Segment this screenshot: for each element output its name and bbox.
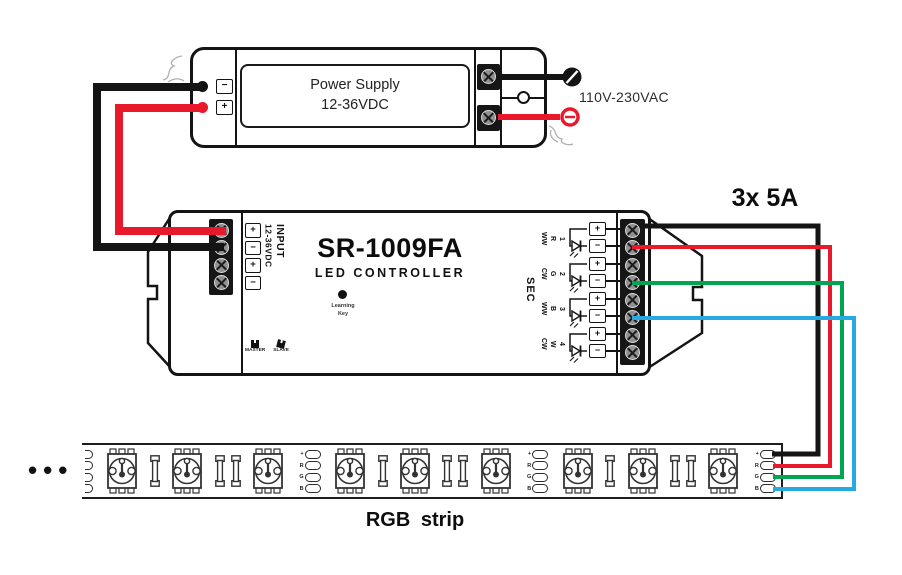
led-symbol	[564, 292, 590, 332]
psu-ac-screw-terminal-bottom	[477, 105, 500, 131]
channel-4-plus-box: +	[589, 327, 606, 341]
power-supply-voltage: 12-36VDC	[321, 96, 389, 116]
strip-pad	[305, 461, 321, 470]
strip-solder-pads: +RGB	[523, 445, 550, 497]
strip-pad-label: +	[523, 451, 531, 457]
slave-label: SLAVE	[273, 348, 289, 353]
output-rating-label: 3x 5A	[695, 184, 835, 213]
controller-left-face-line	[241, 213, 243, 373]
strip-pad	[532, 461, 548, 470]
screw-icon	[481, 69, 496, 84]
strip-pad	[532, 450, 548, 459]
channel-4-labels: CW W 4	[540, 329, 565, 359]
strip-title: RGB strip	[335, 509, 495, 532]
strip-continuation-dots: •••	[28, 455, 73, 486]
strip-led-module	[563, 448, 593, 494]
controller-input-block	[209, 219, 233, 295]
input-terminal-3: +	[245, 258, 261, 273]
strip-pad-label: B	[296, 486, 304, 492]
psu-ac-section-line	[474, 50, 476, 145]
ac-neutral-connector-icon	[563, 68, 582, 87]
input-label-group: 12-36VDC INPUT	[264, 224, 285, 268]
channel-4-minus-box: −	[589, 344, 606, 358]
strip-led-module	[400, 448, 430, 494]
controller-output-block	[620, 219, 645, 365]
power-supply-divider	[235, 50, 237, 145]
master-slave-group: MASTER SLAVE	[245, 340, 289, 353]
channel-4: CW W 4 + −	[540, 327, 620, 361]
strip-pad	[760, 450, 776, 459]
strip-pad	[305, 484, 321, 493]
strip-led-module	[107, 448, 137, 494]
rgb-strip: +RGB+RGB+RGB	[82, 443, 783, 499]
strip-cut-pads	[85, 445, 95, 497]
channel-3-minus-box: −	[589, 309, 606, 323]
strip-led-module	[253, 448, 283, 494]
led-symbol	[564, 327, 590, 367]
wire-strip-positive	[640, 226, 818, 454]
led-symbol	[564, 222, 590, 262]
strip-pad-label: G	[296, 474, 304, 480]
screw-icon	[214, 275, 229, 290]
strip-pad	[760, 473, 776, 482]
strip-pad-label: +	[751, 451, 759, 457]
power-supply-label-box: Power Supply 12-36VDC	[240, 64, 470, 128]
channel-1-labels: WW R 1	[540, 224, 565, 254]
strip-pad	[760, 461, 776, 470]
channel-1: WW R 1 + −	[540, 222, 620, 256]
strip-end-pads: +RGB	[751, 445, 778, 497]
strip-led-module	[708, 448, 738, 494]
strip-cut-pad	[85, 461, 93, 470]
strip-resistor-single	[378, 455, 388, 487]
strip-pad	[532, 484, 548, 493]
input-label: INPUT	[275, 224, 286, 268]
strip-led-module	[628, 448, 658, 494]
strip-pad-label: R	[523, 463, 531, 469]
learning-key-button	[338, 290, 347, 299]
sketch-squiggle-psu-left	[163, 56, 184, 82]
screw-icon	[625, 310, 640, 325]
learning-key-label: Learning Key	[318, 302, 368, 319]
controller-subtitle: LED CONTROLLER	[300, 266, 480, 280]
strip-resistor-double	[215, 455, 241, 487]
strip-pad	[760, 484, 776, 493]
strip-solder-pads: +RGB	[296, 445, 323, 497]
strip-resistor-double	[670, 455, 696, 487]
psu-minus-terminal: −	[216, 79, 233, 94]
controller-title-block: SR-1009FA LED CONTROLLER	[300, 233, 480, 280]
screw-icon	[625, 345, 640, 360]
psu-plus-wire-dot	[197, 102, 208, 113]
channel-2: CW G 2 + −	[540, 257, 620, 291]
led-symbol	[564, 257, 590, 297]
controller-right-mounting-ear	[648, 218, 702, 368]
psu-plus-terminal: +	[216, 100, 233, 115]
strip-pad-label: R	[296, 463, 304, 469]
sec-label: SEC	[524, 277, 535, 303]
strip-cut-pad	[85, 450, 93, 459]
master-switch-icon	[251, 340, 259, 348]
screw-icon	[625, 258, 640, 273]
strip-pad-label: +	[296, 451, 304, 457]
screw-icon	[214, 258, 229, 273]
channel-2-plus-box: +	[589, 257, 606, 271]
strip-resistor-single	[605, 455, 615, 487]
input-terminal-2: −	[245, 241, 261, 256]
screw-icon	[625, 240, 640, 255]
channel-2-labels: CW G 2	[540, 259, 565, 289]
power-supply-name: Power Supply	[310, 76, 399, 96]
channel-3-labels: WW B 3	[540, 294, 565, 324]
screw-icon	[481, 110, 496, 125]
screw-icon	[625, 293, 640, 308]
strip-cut-pad	[85, 484, 93, 493]
controller-model: SR-1009FA	[300, 233, 480, 264]
strip-led-module	[335, 448, 365, 494]
strip-pad-label: G	[523, 474, 531, 480]
strip-pad-label: B	[751, 486, 759, 492]
screw-icon	[625, 223, 640, 238]
strip-led-module	[172, 448, 202, 494]
strip-pad-label: G	[751, 474, 759, 480]
screw-icon	[625, 275, 640, 290]
strip-pad	[305, 450, 321, 459]
input-voltage-label: 12-36VDC	[264, 224, 273, 268]
input-terminal-1: +	[245, 223, 261, 238]
ac-line-connector-icon	[562, 109, 578, 125]
strip-pad	[305, 473, 321, 482]
channel-2-minus-box: −	[589, 274, 606, 288]
channel-1-plus-box: +	[589, 222, 606, 236]
strip-resistor-double	[442, 455, 468, 487]
sketch-squiggle-psu-right	[549, 126, 573, 145]
strip-pad-label: R	[751, 463, 759, 469]
wire-strip-red	[632, 247, 830, 466]
strip-led-module	[481, 448, 511, 494]
strip-pad-label: B	[523, 486, 531, 492]
channel-1-minus-box: −	[589, 239, 606, 253]
psu-minus-wire-dot	[197, 81, 208, 92]
channel-3-plus-box: +	[589, 292, 606, 306]
screw-icon	[214, 240, 229, 255]
screw-icon	[214, 223, 229, 238]
strip-cut-pad	[85, 473, 93, 482]
psu-ac-screw-terminal-top	[477, 64, 500, 90]
screw-icon	[625, 328, 640, 343]
input-terminal-4: −	[245, 276, 261, 291]
ac-voltage-label: 110V-230VAC	[579, 89, 669, 105]
channel-3: WW B 3 + −	[540, 292, 620, 326]
master-label: MASTER	[245, 348, 265, 353]
strip-resistor-single	[150, 455, 160, 487]
psu-mount-hole	[517, 91, 530, 104]
wiring-diagram: Power Supply 12-36VDC − + 110V-230VAC + …	[0, 0, 902, 575]
strip-pad	[532, 473, 548, 482]
